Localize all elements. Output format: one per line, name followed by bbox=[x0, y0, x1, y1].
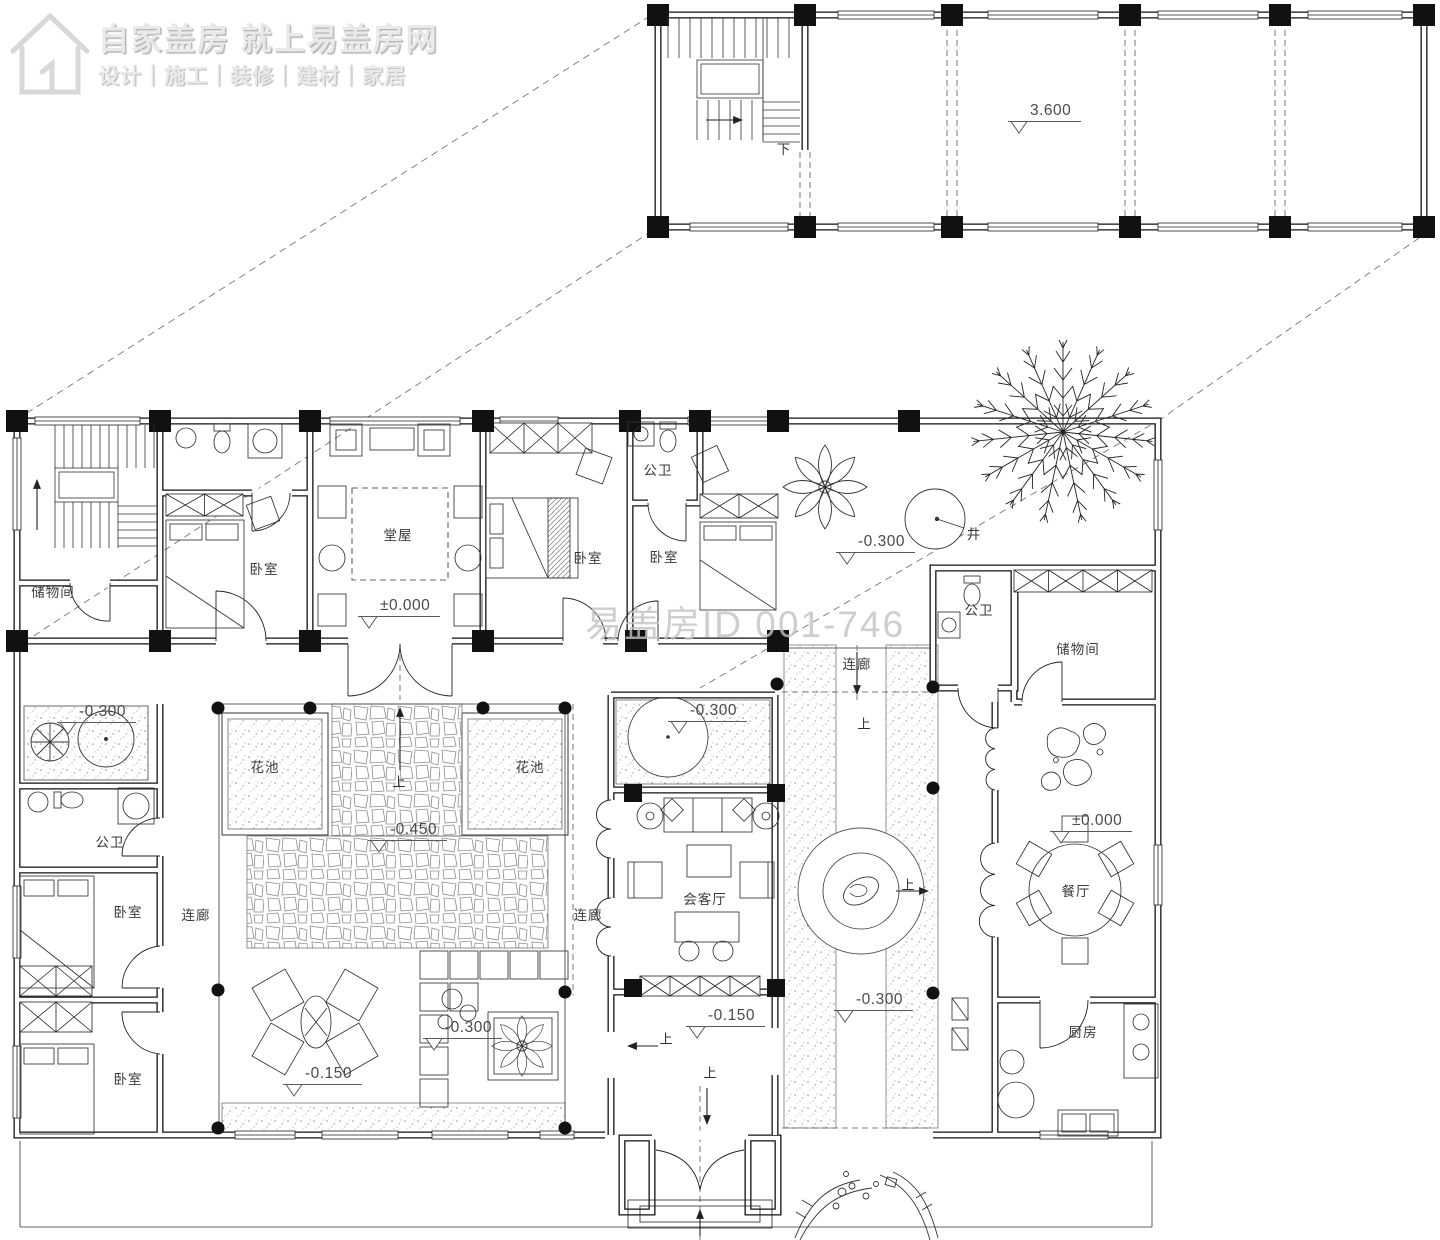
room-label-planter-right: 花池 bbox=[516, 756, 545, 776]
site-lines bbox=[20, 648, 1152, 1227]
elevation-value: ±0.000 bbox=[1072, 812, 1122, 829]
elevation-triangle-icon bbox=[1052, 831, 1070, 844]
elevation-triangle-icon bbox=[370, 840, 388, 853]
site-logo: 自家盖房 就上易盖房网 设计｜施工｜装修｜建材｜家居 bbox=[8, 6, 438, 102]
elevation-marker: -0.300 bbox=[836, 533, 915, 553]
room-label-dining: 餐厅 bbox=[1062, 880, 1091, 900]
room-label-bedroom-ne: 卧室 bbox=[650, 546, 679, 566]
elevation-triangle-icon bbox=[688, 1026, 706, 1039]
room-label-bedroom-nw: 卧室 bbox=[250, 558, 279, 578]
room-label-bath-n: 公卫 bbox=[644, 459, 673, 479]
x-bands bbox=[20, 423, 1152, 1032]
stair-upper bbox=[668, 18, 800, 142]
elevation-marker: 3.600 bbox=[1008, 102, 1081, 122]
elevation-value: -0.300 bbox=[445, 1019, 492, 1036]
windows bbox=[13, 11, 1402, 1139]
room-label-bath-e: 公卫 bbox=[965, 599, 994, 619]
house-icon bbox=[8, 6, 92, 98]
elevation-value: ±0.000 bbox=[380, 597, 430, 614]
direction-label: 上 bbox=[703, 1063, 716, 1082]
floor-plan-page: 自家盖房 就上易盖房网 设计｜施工｜装修｜建材｜家居 易盖房ID 001-746… bbox=[0, 0, 1440, 1240]
direction-label: 上 bbox=[901, 875, 914, 894]
elevation-triangle-icon bbox=[670, 721, 688, 734]
elevation-value: -0.300 bbox=[856, 991, 903, 1008]
elevation-triangle-icon bbox=[1010, 121, 1028, 134]
elevation-marker: -0.450 bbox=[368, 821, 447, 841]
direction-label: 上 bbox=[857, 714, 870, 733]
flower-tree bbox=[783, 445, 867, 529]
elevation-value: -0.300 bbox=[690, 702, 737, 719]
room-label-corridor-center: 连廊 bbox=[574, 904, 603, 924]
stair-nw bbox=[55, 425, 157, 548]
room-label-bedroom-n: 卧室 bbox=[574, 547, 603, 567]
direction-label: 上 bbox=[659, 1029, 672, 1048]
elevation-triangle-icon bbox=[836, 1010, 854, 1023]
room-label-storage-nw: 储物间 bbox=[31, 581, 75, 601]
elevation-marker: -0.300 bbox=[834, 991, 913, 1011]
elevation-marker: -0.300 bbox=[57, 703, 136, 723]
room-label-reception: 会客厅 bbox=[683, 888, 727, 908]
bamboo-sketch bbox=[795, 1172, 938, 1240]
rock-garden bbox=[1041, 723, 1105, 790]
elevation-triangle-icon bbox=[285, 1084, 303, 1097]
logo-title: 自家盖房 就上易盖房网 bbox=[98, 14, 439, 59]
projection-lines bbox=[16, 16, 1429, 688]
elevation-triangle-icon bbox=[838, 552, 856, 565]
columns bbox=[6, 4, 1435, 1135]
elevation-marker: ±0.000 bbox=[358, 597, 440, 617]
watermark: 易盖房ID 001-746 bbox=[585, 594, 905, 648]
elevation-marker: -0.300 bbox=[423, 1019, 502, 1039]
room-label-bedroom-w1: 卧室 bbox=[114, 901, 143, 921]
room-label-bath-w: 公卫 bbox=[96, 831, 125, 851]
room-label-corridor-ne: 连廊 bbox=[843, 653, 872, 673]
elevation-value: -0.150 bbox=[708, 1007, 755, 1024]
pine-tree bbox=[970, 340, 1155, 524]
elevation-value: 3.600 bbox=[1030, 102, 1071, 119]
elevation-marker: ±0.000 bbox=[1050, 812, 1132, 832]
elevation-triangle-icon bbox=[59, 722, 77, 735]
furniture bbox=[20, 422, 1158, 1136]
room-label-planter-left: 花池 bbox=[251, 756, 280, 776]
elevation-value: -0.300 bbox=[858, 533, 905, 550]
elevation-triangle-icon bbox=[360, 616, 378, 629]
room-label-main-hall: 堂屋 bbox=[384, 524, 413, 544]
room-label-bedroom-w2: 卧室 bbox=[114, 1068, 143, 1088]
room-label-stair-down: 下 bbox=[777, 138, 792, 158]
elevation-triangle-icon bbox=[425, 1038, 443, 1051]
logo-subtitle: 设计｜施工｜装修｜建材｜家居 bbox=[98, 60, 406, 90]
direction-label: 上 bbox=[392, 772, 405, 791]
room-label-well: 井 bbox=[967, 523, 982, 543]
room-label-corridor-w: 连廊 bbox=[182, 904, 211, 924]
elevation-value: -0.150 bbox=[305, 1065, 352, 1082]
room-label-storage-e: 储物间 bbox=[1056, 638, 1100, 658]
elevation-marker: -0.300 bbox=[668, 702, 747, 722]
elevation-value: -0.450 bbox=[390, 821, 437, 838]
elevation-marker: -0.150 bbox=[686, 1007, 765, 1027]
elevation-marker: -0.150 bbox=[283, 1065, 362, 1085]
room-label-kitchen: 厨房 bbox=[1069, 1021, 1098, 1041]
elevation-value: -0.300 bbox=[79, 703, 126, 720]
